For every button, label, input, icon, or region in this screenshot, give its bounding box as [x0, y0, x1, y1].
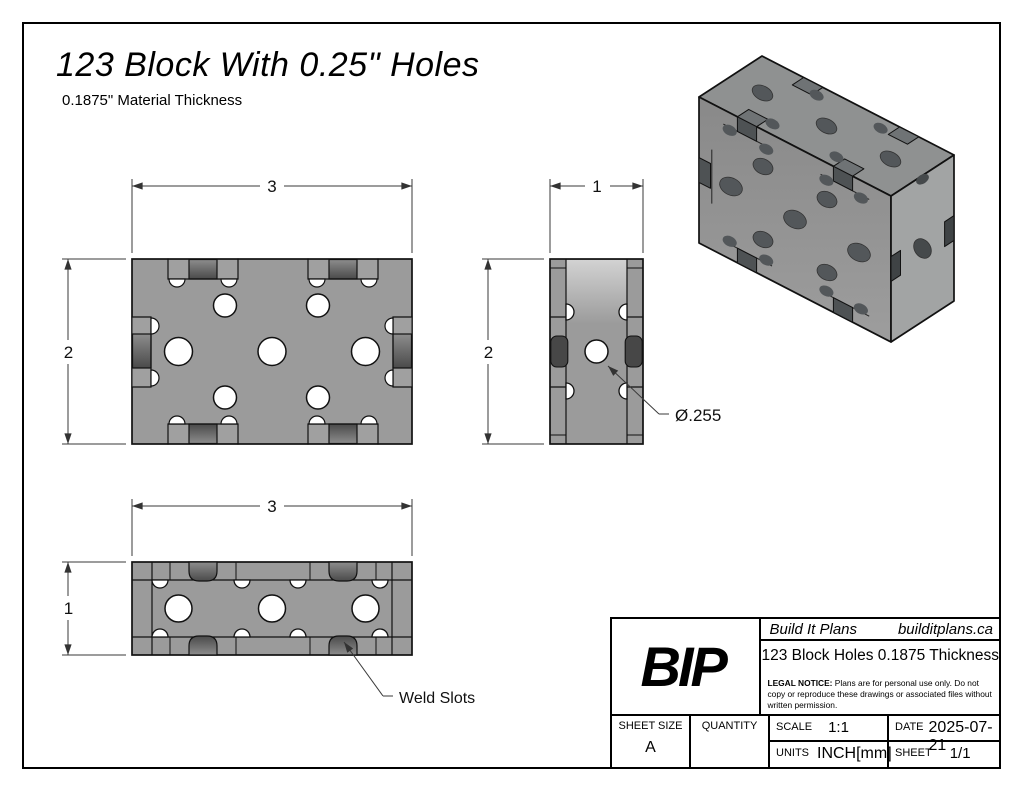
legal-notice: LEGAL NOTICE: Plans are for personal use… [767, 678, 997, 711]
hole-diameter-label: Ø.255 [675, 406, 721, 425]
weld-slots-label: Weld Slots [399, 690, 475, 707]
sheet-label: SHEET [895, 745, 932, 759]
front-width-dim: 3 [267, 177, 276, 196]
title-block: BIP Build It Plans builditplans.ca 123 B… [610, 617, 1001, 769]
side-view [550, 259, 643, 444]
drawing-sheet: 123 Block With 0.25" Holes 0.1875" Mater… [0, 0, 1024, 791]
date-sheet-column: DATE 2025-07-21 SHEET 1/1 [889, 716, 999, 767]
top-height-dim: 1 [64, 599, 73, 618]
company-logo: BIP [612, 619, 761, 714]
quantity-label: QUANTITY [691, 716, 768, 732]
units-value: INCH[mm] [817, 745, 892, 763]
scale-label: SCALE [776, 719, 812, 733]
sheet-value: 1/1 [950, 745, 971, 762]
side-right-slot [625, 336, 642, 367]
front-height-dim: 2 [64, 343, 73, 362]
side-left-slot [551, 336, 568, 367]
side-center-hole [585, 340, 608, 363]
company-name: Build It Plans [769, 621, 857, 638]
scale-units-column: SCALE 1:1 UNITS INCH[mm] [770, 716, 889, 767]
drawing-title: 123 Block Holes 0.1875 Thickness [761, 647, 999, 665]
sheet-size-label: SHEET SIZE [612, 716, 689, 732]
company-website: builditplans.ca [898, 621, 993, 638]
date-label: DATE [895, 719, 924, 733]
scale-value: 1:1 [828, 719, 849, 736]
side-height-dim: 2 [484, 343, 493, 362]
sheet-size-cell: SHEET SIZE A [612, 716, 691, 767]
top-width-dim: 3 [267, 497, 276, 516]
top-view [132, 562, 412, 655]
front-view [132, 259, 412, 444]
isometric-view [699, 56, 954, 342]
legal-notice-label: LEGAL NOTICE: [767, 678, 832, 688]
side-width-dim: 1 [592, 177, 601, 196]
units-label: UNITS [776, 745, 809, 759]
quantity-cell: QUANTITY [691, 716, 770, 767]
sheet-size-value: A [612, 739, 689, 757]
